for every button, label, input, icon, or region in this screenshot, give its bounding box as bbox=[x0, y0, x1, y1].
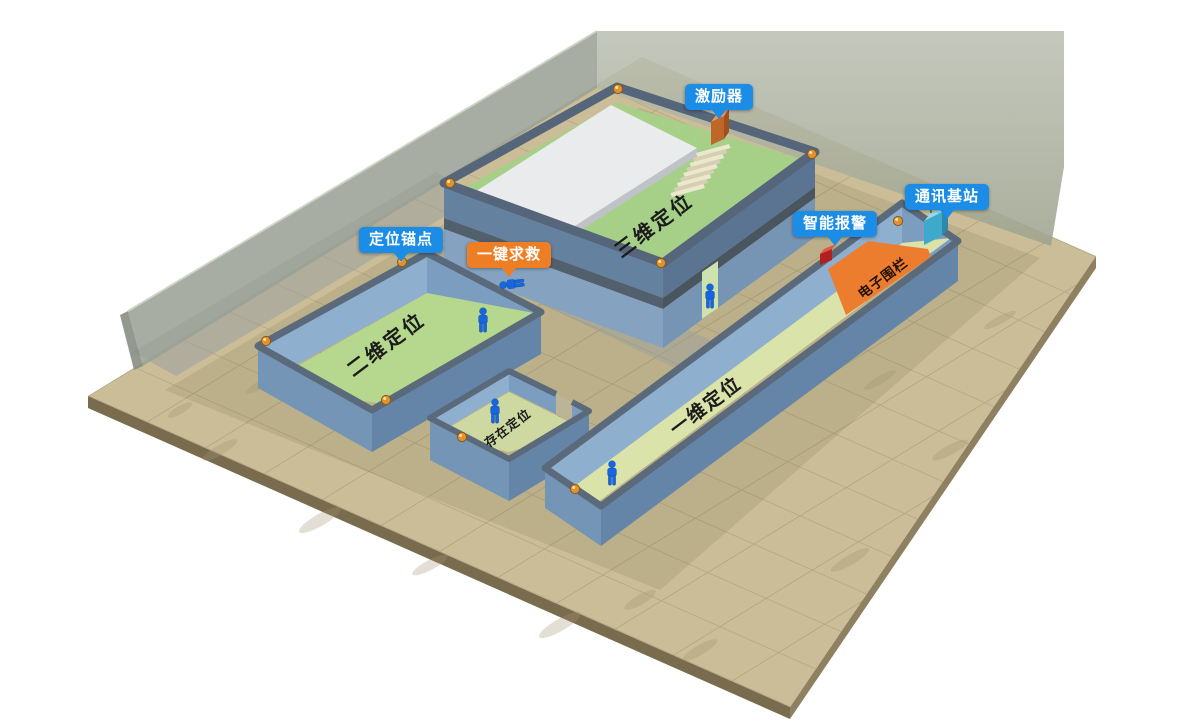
anchor-node bbox=[656, 258, 665, 267]
anchor-node bbox=[570, 484, 579, 493]
anchor-node bbox=[613, 84, 622, 93]
anchor-node bbox=[381, 395, 390, 404]
anchor-node bbox=[457, 432, 466, 441]
anchor-node bbox=[261, 336, 270, 345]
scene-canvas bbox=[0, 0, 1200, 723]
anchor-node bbox=[807, 149, 816, 158]
anchor-node bbox=[445, 178, 454, 187]
callout-exciter[interactable]: 激励器 bbox=[685, 84, 753, 110]
callout-one-key-sos[interactable]: 一键求救 bbox=[467, 242, 551, 268]
positioning-demo-scene: 三维定位 二维定位 存在定位 一维定位 电子围栏 激励器 通讯基站 智能报警 定… bbox=[0, 0, 1200, 723]
callout-smart-alarm[interactable]: 智能报警 bbox=[793, 211, 877, 237]
callout-comm-base-station[interactable]: 通讯基站 bbox=[905, 184, 989, 210]
callout-anchor-point[interactable]: 定位锚点 bbox=[359, 227, 443, 253]
anchor-node bbox=[893, 216, 902, 225]
